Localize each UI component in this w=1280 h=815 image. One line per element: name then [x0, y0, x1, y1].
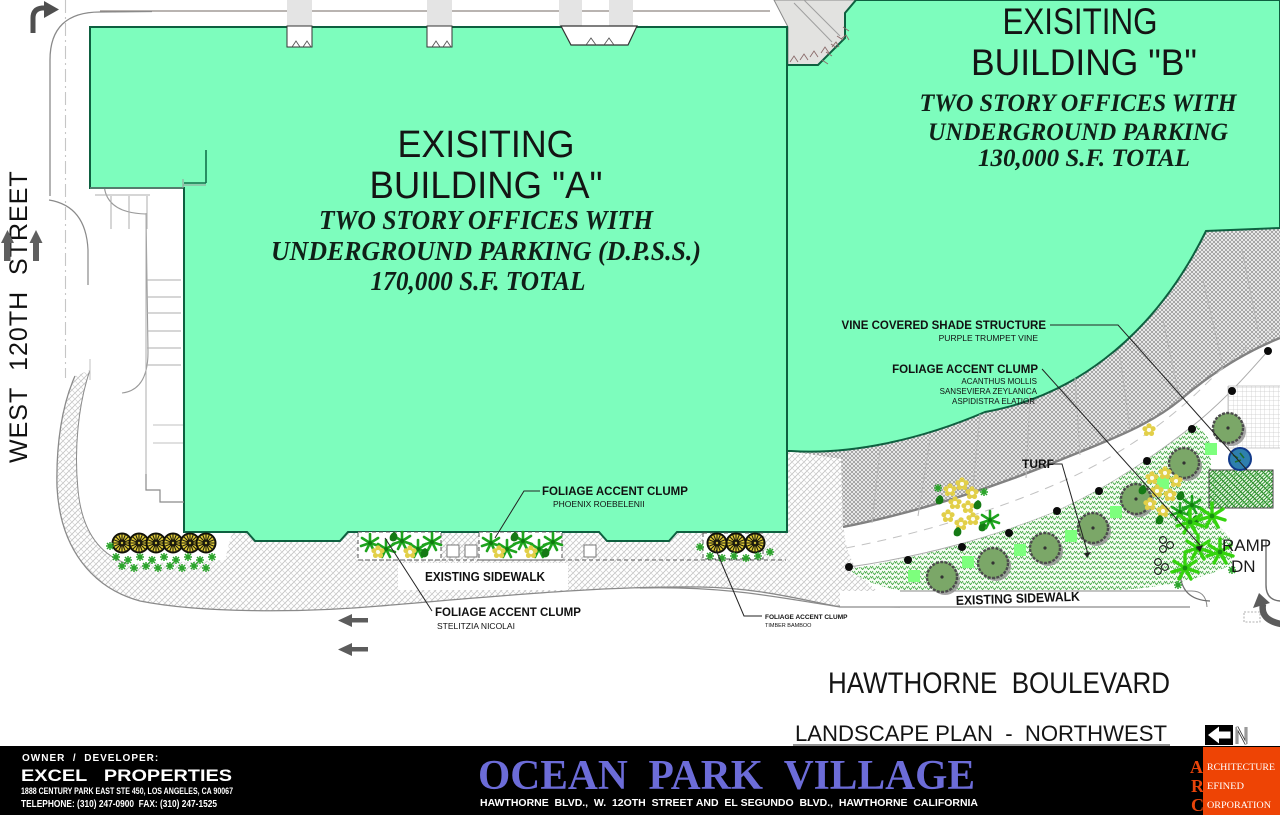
svg-text:PHOENIX ROEBELENII: PHOENIX ROEBELENII [553, 499, 645, 509]
svg-text:BUILDING "A": BUILDING "A" [370, 165, 603, 207]
svg-text:SANSEVIERA ZEYLANICA: SANSEVIERA ZEYLANICA [940, 387, 1038, 396]
svg-text:ORPORATION: ORPORATION [1207, 800, 1272, 810]
svg-text:LANDSCAPE PLAN - NORTHWEST: LANDSCAPE PLAN - NORTHWEST [795, 721, 1167, 746]
svg-text:EXISITING: EXISITING [1003, 1, 1158, 42]
svg-text:TURF: TURF [1022, 457, 1054, 471]
svg-text:ACANTHUS MOLLIS: ACANTHUS MOLLIS [961, 377, 1037, 386]
svg-text:WEST 120TH STREET: WEST 120TH STREET [5, 170, 33, 463]
svg-text:TELEPHONE: (310) 247-0900 FAX: TELEPHONE: (310) 247-0900 FAX: (310) 247… [21, 799, 217, 810]
svg-text:R: R [1191, 776, 1205, 796]
svg-text:130,000 S.F. TOTAL: 130,000 S.F. TOTAL [978, 145, 1190, 172]
svg-text:OWNER / DEVELOPER:: OWNER / DEVELOPER: [22, 753, 159, 764]
svg-text:TWO STORY OFFICES WITH: TWO STORY OFFICES WITH [920, 90, 1239, 117]
svg-text:FOLIAGE ACCENT CLUMP: FOLIAGE ACCENT CLUMP [435, 607, 581, 619]
svg-text:EXISITING: EXISITING [398, 124, 575, 166]
svg-text:OCEAN PARK VILLAGE: OCEAN PARK VILLAGE [478, 753, 975, 799]
svg-text:UNDERGROUND PARKING (D.P.S.S.): UNDERGROUND PARKING (D.P.S.S.) [271, 236, 701, 266]
svg-text:170,000 S.F. TOTAL: 170,000 S.F. TOTAL [371, 266, 586, 296]
svg-text:HAWTHORNE BOULEVARD: HAWTHORNE BOULEVARD [828, 667, 1170, 700]
svg-text:1888 CENTURY PARK EAST STE 450: 1888 CENTURY PARK EAST STE 450, LOS ANGE… [21, 786, 233, 796]
svg-text:BUILDING "B": BUILDING "B" [971, 42, 1197, 83]
svg-text:A: A [1190, 757, 1203, 777]
svg-text:TIMBER BAMBOO: TIMBER BAMBOO [765, 623, 812, 629]
svg-text:EFINED: EFINED [1207, 781, 1245, 791]
svg-text:PURPLE TRUMPET VINE: PURPLE TRUMPET VINE [939, 333, 1039, 343]
svg-text:VINE COVERED SHADE STRUCTURE: VINE COVERED SHADE STRUCTURE [842, 320, 1047, 332]
svg-text:FOLIAGE ACCENT CLUMP: FOLIAGE ACCENT CLUMP [892, 364, 1038, 376]
svg-text:DN: DN [1231, 557, 1256, 576]
svg-text:FOLIAGE ACCENT CLUMP: FOLIAGE ACCENT CLUMP [542, 486, 688, 498]
svg-text:RAMP: RAMP [1222, 536, 1271, 555]
svg-text:EXCEL PROPERTIES: EXCEL PROPERTIES [21, 767, 232, 785]
svg-text:TWO STORY OFFICES WITH: TWO STORY OFFICES WITH [319, 205, 654, 235]
svg-text:EXISTING SIDEWALK: EXISTING SIDEWALK [425, 570, 545, 584]
svg-text:FOLIAGE ACCENT CLUMP: FOLIAGE ACCENT CLUMP [765, 614, 848, 621]
svg-text:RCHITECTURE: RCHITECTURE [1207, 762, 1276, 772]
svg-text:UNDERGROUND PARKING: UNDERGROUND PARKING [928, 119, 1228, 146]
svg-text:C: C [1191, 795, 1204, 815]
svg-text:ASPIDISTRA ELATIOR: ASPIDISTRA ELATIOR [952, 397, 1035, 406]
svg-text:STELITZIA NICOLAI: STELITZIA NICOLAI [437, 621, 515, 631]
svg-text:HAWTHORNE BLVD., W. 12OTH: HAWTHORNE BLVD., W. 12OTH STREET AND EL … [480, 797, 978, 809]
